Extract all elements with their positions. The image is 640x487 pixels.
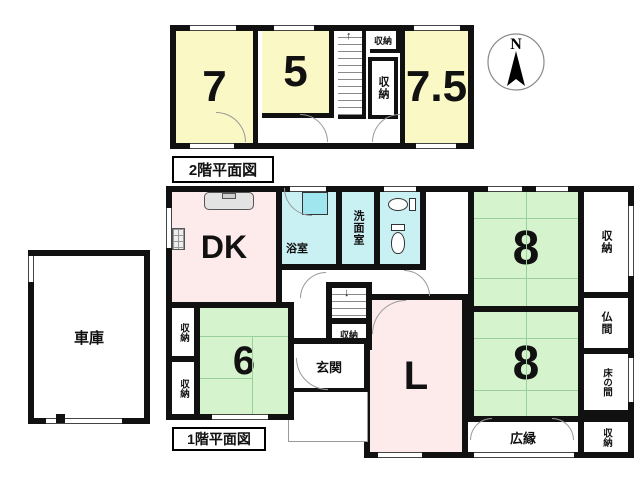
- wall: [420, 186, 474, 192]
- washroom-label: 洗面室: [350, 210, 366, 246]
- compass-icon: N: [483, 20, 549, 98]
- closet-side-label: 収納: [375, 76, 391, 100]
- tokonoma-label: 床の間: [599, 368, 613, 397]
- floor1-room-6: 6: [194, 302, 294, 420]
- window: [28, 256, 34, 282]
- floor-plan-image: 7 5 ↑ 収納 収納 7.5 2階平面図 N DK 浴室: [0, 0, 640, 487]
- window: [628, 206, 634, 276]
- tatami-line: [252, 336, 253, 414]
- tatami-line: [200, 378, 252, 379]
- window: [378, 452, 422, 458]
- window: [384, 186, 416, 192]
- stairs-up-arrow-icon: ↑: [346, 31, 352, 42]
- floor2-room-7-5: 7.5: [400, 31, 468, 143]
- toilet-icon: [388, 198, 408, 211]
- garage-door-post: [56, 414, 65, 423]
- closet-w1-label: 収納: [176, 323, 190, 342]
- window: [166, 208, 172, 248]
- stairs-down-arrow-icon: ↓: [344, 288, 350, 299]
- closet-east-label: 収納: [598, 230, 614, 254]
- window: [190, 25, 236, 31]
- room-5-label: 5: [283, 50, 307, 94]
- tatami-line: [526, 312, 527, 416]
- kitchen-faucet-icon: [222, 193, 236, 199]
- floor2-room-5: 5: [262, 31, 334, 118]
- closet-se-label: 収納: [599, 428, 613, 447]
- floor2-closet-side: 収納: [368, 57, 398, 119]
- floor1-closet-east: 収納: [578, 186, 634, 298]
- floor1-butsuma: 仏間: [578, 292, 634, 354]
- window: [190, 143, 234, 149]
- floor2-caption-text: 2階平面図: [189, 159, 257, 180]
- door-arc: [300, 272, 326, 298]
- toilet-icon: [391, 232, 405, 254]
- tatami-line: [526, 192, 527, 306]
- door-arc: [404, 270, 430, 296]
- stove-icon: [172, 228, 185, 250]
- hiroen-label: 広縁: [510, 428, 536, 447]
- window: [536, 186, 568, 192]
- room-7-5-label: 7.5: [406, 65, 467, 109]
- floor1-caption-text: 1階平面図: [187, 429, 251, 449]
- floor2-closet-top: 収納: [370, 31, 400, 53]
- room-7-label: 7: [202, 65, 226, 109]
- floor1-closet-se: 収納: [578, 416, 634, 458]
- closet-top-label: 収納: [374, 34, 392, 47]
- toilet-tank-icon: [391, 224, 405, 231]
- floor2-caption: 2階平面図: [172, 156, 274, 183]
- tatami-line: [200, 336, 288, 337]
- garage: 車庫: [28, 250, 150, 424]
- window: [488, 186, 522, 192]
- window: [290, 186, 326, 192]
- butsuma-label: 仏間: [598, 311, 614, 335]
- living-label: L: [404, 356, 428, 396]
- compass-north-label: N: [510, 36, 522, 53]
- window: [628, 358, 634, 402]
- window: [414, 25, 460, 31]
- floor1-closet-w2: 収納: [166, 356, 200, 420]
- entrance-porch: [288, 392, 368, 442]
- garage-label: 車庫: [74, 327, 104, 348]
- floor2-stairs: [338, 31, 366, 119]
- closet-w2-label: 収納: [176, 379, 190, 398]
- dk-label: DK: [201, 231, 247, 263]
- toilet-tank-icon: [409, 198, 416, 211]
- bath-label: 浴室: [286, 240, 308, 256]
- window: [274, 25, 314, 31]
- window: [474, 452, 574, 458]
- window: [416, 143, 456, 149]
- window: [212, 414, 268, 420]
- floor1-tokonoma: 床の間: [578, 348, 634, 416]
- floor1-closet-w1: 収納: [166, 302, 200, 362]
- floor1-caption: 1階平面図: [172, 427, 266, 451]
